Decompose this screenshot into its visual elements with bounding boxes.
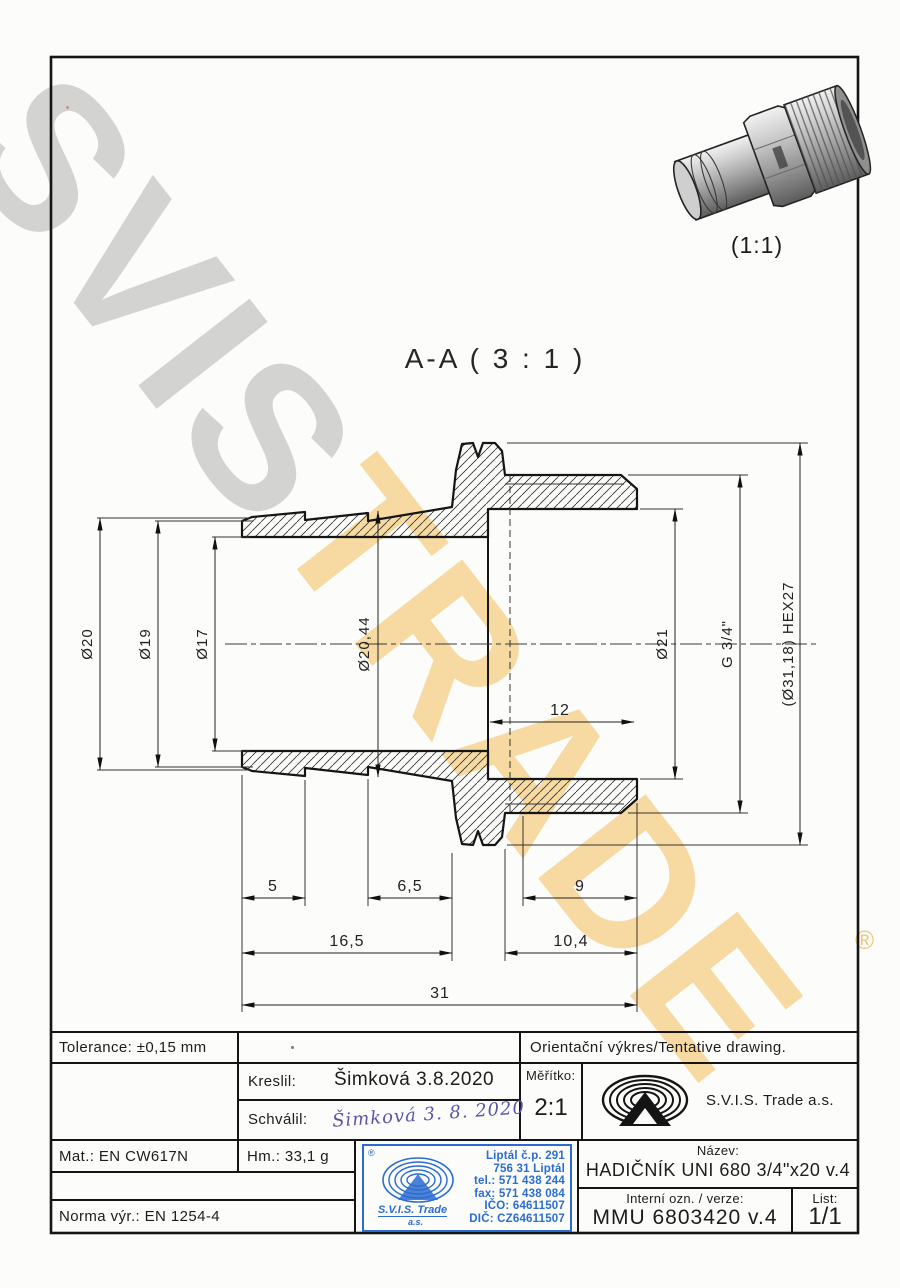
stamp-line: DIČ: CZ64611507	[469, 1213, 565, 1226]
material-field: Mat.: EN CW617N	[59, 1148, 188, 1165]
meritko-label: Měřítko:	[526, 1068, 575, 1083]
dim-d20-44: Ø20,44	[356, 616, 373, 671]
nazev-label: Název:	[578, 1143, 858, 1158]
stamp-logo	[372, 1154, 464, 1206]
stamp-line: fax: 571 438 084	[469, 1188, 565, 1201]
upper-wall-section	[242, 443, 637, 537]
dim-d21: Ø21	[654, 628, 671, 659]
meritko-value: 2:1	[520, 1094, 582, 1122]
dim-d19: Ø19	[137, 628, 154, 659]
mass-field: Hm.: 33,1 g	[247, 1148, 329, 1165]
tolerance-field: Tolerance: ±0,15 mm	[59, 1039, 207, 1056]
company-name: S.V.I.S. Trade a.s.	[706, 1092, 834, 1109]
dim-hex27: (Ø31,18) HEX27	[780, 582, 797, 707]
dim-16-5: 16,5	[329, 933, 364, 950]
schvalil-label: Schválil:	[248, 1111, 307, 1128]
stamp-company-suffix: a.s.	[408, 1217, 423, 1227]
dim-g34: G 3/4"	[719, 620, 736, 668]
photo-scale-label: (1:1)	[731, 232, 783, 258]
nazev-value: HADIČNÍK UNI 680 3/4"x20 v.4	[578, 1160, 858, 1181]
interni-value: MMU 6803420 v.4	[578, 1206, 792, 1230]
lower-wall-section	[242, 751, 637, 845]
part-3d-view	[662, 82, 876, 238]
section-label: A-A ( 3 : 1 )	[405, 343, 586, 374]
dim-d17: Ø17	[194, 628, 211, 659]
stamp-address: Liptál č.p. 291 756 31 Liptál tel.: 571 …	[469, 1150, 565, 1226]
company-logo	[603, 1076, 687, 1126]
company-stamp: ® S.V.I.S. Trade a.s. Liptál č.p. 291 75…	[362, 1144, 572, 1232]
dim-12: 12	[550, 702, 570, 719]
dim-9: 9	[575, 878, 585, 895]
dimension-labels: Ø20 Ø19 Ø17 Ø20,44 Ø21 G 3/4" (Ø31,18) H…	[79, 582, 797, 1002]
list-value: 1/1	[792, 1203, 858, 1231]
orientacni-note: Orientační výkres/Tentative drawing.	[530, 1039, 786, 1056]
dim-5: 5	[268, 878, 278, 895]
norm-field: Norma výr.: EN 1254-4	[59, 1208, 220, 1225]
dim-10-4: 10,4	[553, 933, 588, 950]
stamp-line: Liptál č.p. 291	[469, 1150, 565, 1163]
dim-d20: Ø20	[79, 628, 96, 659]
dim-6-5: 6,5	[397, 878, 422, 895]
dim-31: 31	[430, 985, 450, 1002]
scanned-technical-drawing: SVIS TRADE ®	[0, 0, 900, 1288]
kreslil-value: Šimková 3.8.2020	[334, 1069, 494, 1091]
interni-label: Interní ozn. / verze:	[578, 1191, 792, 1206]
stamp-company: S.V.I.S. Trade	[378, 1204, 447, 1217]
stamp-line: 756 31 Liptál	[469, 1163, 565, 1176]
stamp-line: tel.: 571 438 244	[469, 1175, 565, 1188]
stamp-line: IČO: 64611507	[469, 1200, 565, 1213]
kreslil-label: Kreslil:	[248, 1073, 296, 1090]
